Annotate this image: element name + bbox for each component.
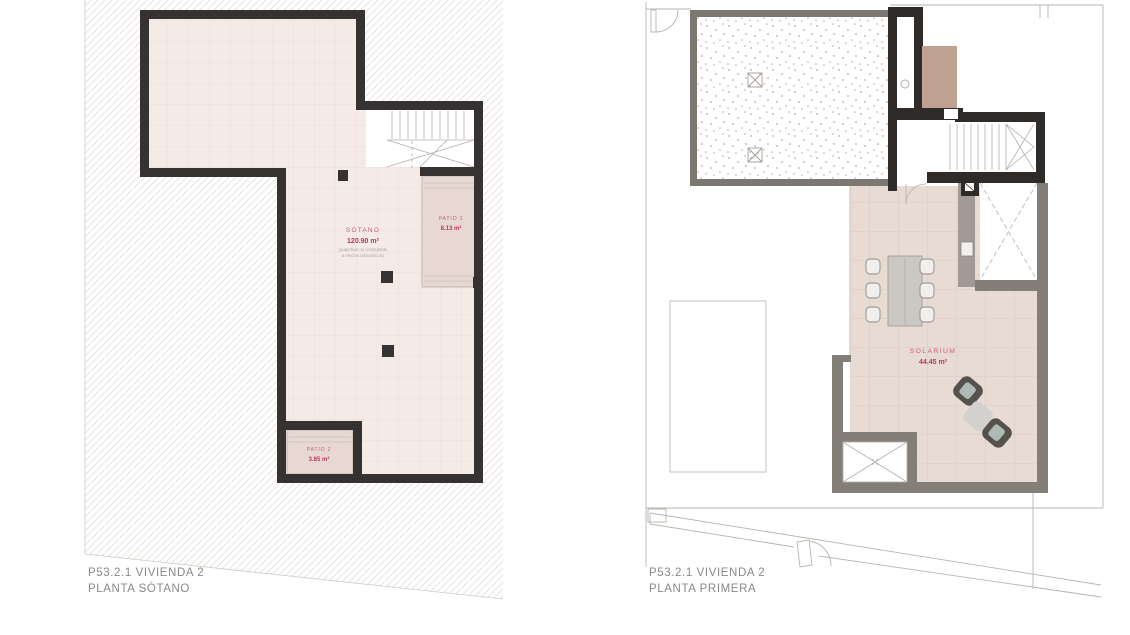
room-note: (superficie no computable xyxy=(339,247,388,252)
room-note: a efectos urbanísticos) xyxy=(342,253,385,258)
plan-title-line1: P53.2.1 VIVIENDA 2 xyxy=(649,567,765,579)
core-fixture xyxy=(961,179,979,196)
plan-title-line2: PLANTA SÓTANO xyxy=(88,582,190,595)
basement-stair xyxy=(366,110,474,170)
room-area: 120.90 m² xyxy=(347,238,380,245)
room-name: SOLARIUM xyxy=(910,348,957,355)
window-gap xyxy=(944,109,958,119)
room-area: 44.45 m² xyxy=(919,359,948,366)
site-gate xyxy=(797,540,831,567)
left-floor-plan: SÓTANO 120.90 m² (superficie no computab… xyxy=(85,0,503,599)
column xyxy=(382,345,394,357)
wall-fixture xyxy=(961,242,973,256)
room-area: 3.85 m² xyxy=(309,456,330,463)
plan-title-line1: P53.2.1 VIVIENDA 2 xyxy=(88,567,204,579)
roof-terrace xyxy=(690,10,893,186)
room-name: PATIO 2 xyxy=(307,447,332,453)
void-opening xyxy=(980,183,1037,280)
wall-pillar xyxy=(338,170,348,181)
floor-plan-drawing: SÓTANO 120.90 m² (superficie no computab… xyxy=(0,0,1130,635)
right-floor-plan: SOLARIUM 44.45 m² P53.2.1 VIVIENDA 2 PLA… xyxy=(646,2,1103,597)
room-name: PATIO 1 xyxy=(439,216,464,222)
vent-icon xyxy=(901,80,909,88)
plan-title-line2: PLANTA PRIMERA xyxy=(649,583,756,595)
right-plan-title: P53.2.1 VIVIENDA 2 PLANTA PRIMERA xyxy=(649,567,765,595)
plan-sheet: SÓTANO 120.90 m² (superficie no computab… xyxy=(0,0,1130,635)
column xyxy=(381,271,393,283)
room-area: 8.13 m² xyxy=(441,225,462,232)
upper-stair xyxy=(945,122,1036,172)
left-plan-title: P53.2.1 VIVIENDA 2 PLANTA SÓTANO xyxy=(88,567,204,595)
site-entry-door xyxy=(651,10,678,32)
room-name: SÓTANO xyxy=(346,225,380,234)
tan-block xyxy=(922,46,957,108)
dining-set xyxy=(866,256,934,326)
stair-core xyxy=(888,7,1045,204)
pool-outline xyxy=(670,301,766,472)
